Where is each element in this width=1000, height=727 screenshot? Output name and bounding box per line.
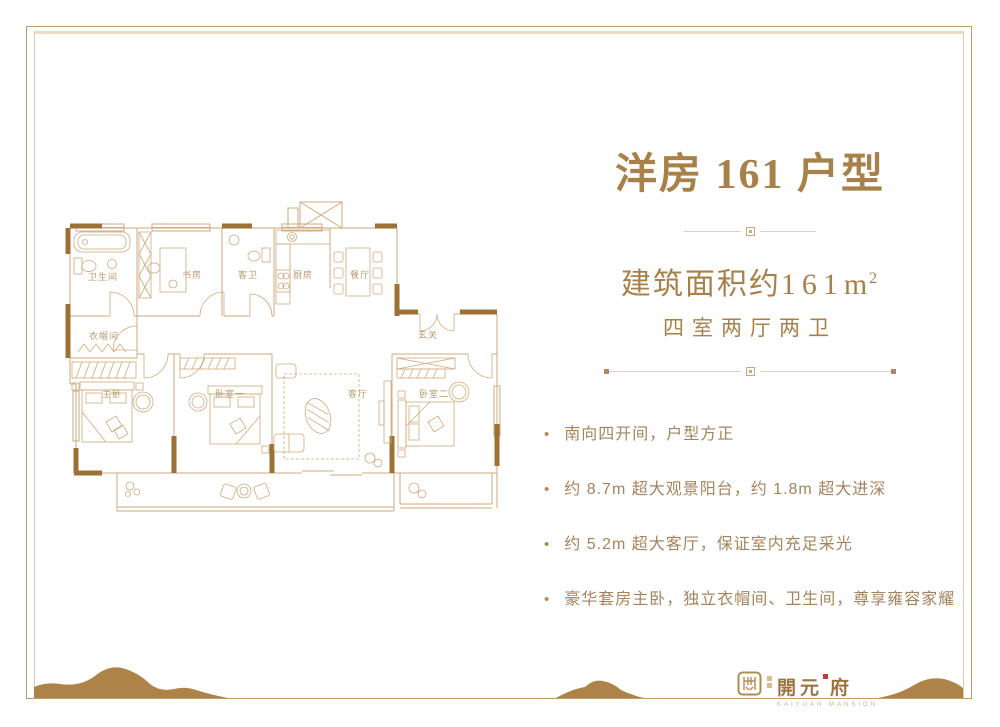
room-count-line: 四室两厅两卫 bbox=[540, 312, 960, 342]
feature-item: •南向四开间，户型方正 bbox=[544, 420, 960, 444]
divider-short bbox=[684, 227, 816, 236]
logo-text-block: 開元 府 KAIYUAN MANSION bbox=[777, 673, 878, 708]
floorplan-drawing: 卫生间 书房 客卫 厨房 餐厅 衣帽间 玄关 主卧 卧室一 客厅 卧室二 bbox=[62, 196, 512, 546]
logo-seal-icon bbox=[737, 671, 762, 696]
feature-text: 约 8.7m 超大观景阳台，约 1.8m 超大进深 bbox=[564, 481, 886, 498]
feature-item: •约 8.7m 超大观景阳台，约 1.8m 超大进深 bbox=[544, 475, 960, 499]
logo-name-part: 開元 bbox=[777, 673, 823, 700]
feature-text: 豪华套房主卧，独立衣帽间、卫生间，尊享雍容家耀 bbox=[564, 591, 955, 608]
page-title: 洋房 161 户型 bbox=[540, 140, 960, 201]
bullet-icon: • bbox=[544, 536, 550, 553]
room-label-living: 客厅 bbox=[348, 388, 368, 399]
logo-red-seal-icon bbox=[823, 674, 828, 679]
area-value: 161 bbox=[781, 268, 844, 301]
divider-long bbox=[604, 367, 896, 376]
room-label-bathroom: 卫生间 bbox=[88, 271, 118, 282]
room-label-bedroom1: 卧室一 bbox=[215, 388, 245, 399]
bullet-icon: • bbox=[544, 426, 550, 443]
room-label-cloakroom: 衣帽间 bbox=[89, 330, 119, 341]
logo-subtitle: KAIYUAN MANSION bbox=[777, 702, 878, 708]
logo-name-part: 府 bbox=[830, 673, 853, 700]
room-label-guest-bath: 客卫 bbox=[238, 269, 258, 280]
logo-name: 開元 府 bbox=[777, 673, 878, 700]
area-label: 建筑面积约 bbox=[621, 268, 781, 301]
feature-text: 约 5.2m 超大客厅，保证室内充足采光 bbox=[564, 536, 852, 553]
building-area: 建筑面积约161m2 bbox=[540, 259, 960, 303]
divider-ornament-icon bbox=[746, 227, 755, 236]
room-label-dining: 餐厅 bbox=[350, 269, 370, 280]
room-label-kitchen: 厨房 bbox=[293, 269, 313, 280]
logo-prefix-characters bbox=[767, 676, 772, 688]
feature-text: 南向四开间，户型方正 bbox=[564, 426, 734, 443]
area-unit: m bbox=[844, 268, 869, 301]
room-label-study: 书房 bbox=[182, 269, 202, 280]
bullet-icon: • bbox=[544, 591, 550, 608]
divider-end-cap bbox=[891, 369, 896, 374]
room-label-bedroom2: 卧室二 bbox=[419, 388, 449, 399]
room-label-entry: 玄关 bbox=[418, 329, 438, 340]
feature-list: •南向四开间，户型方正 •约 8.7m 超大观景阳台，约 1.8m 超大进深 •… bbox=[540, 420, 960, 609]
brand-logo: 開元 府 KAIYUAN MANSION bbox=[737, 671, 878, 708]
feature-item: •约 5.2m 超大客厅，保证室内充足采光 bbox=[544, 530, 960, 554]
room-label-master: 主卧 bbox=[102, 388, 122, 399]
floorplan-walls-thin bbox=[70, 202, 500, 511]
feature-item: •豪华套房主卧，独立衣帽间、卫生间，尊享雍容家耀 bbox=[544, 585, 960, 609]
divider-ornament-icon bbox=[746, 367, 755, 376]
area-unit-sup: 2 bbox=[869, 270, 879, 287]
info-panel: 洋房 161 户型 建筑面积约161m2 四室两厅两卫 •南向四开间，户型方正 … bbox=[540, 140, 960, 640]
bullet-icon: • bbox=[544, 481, 550, 498]
